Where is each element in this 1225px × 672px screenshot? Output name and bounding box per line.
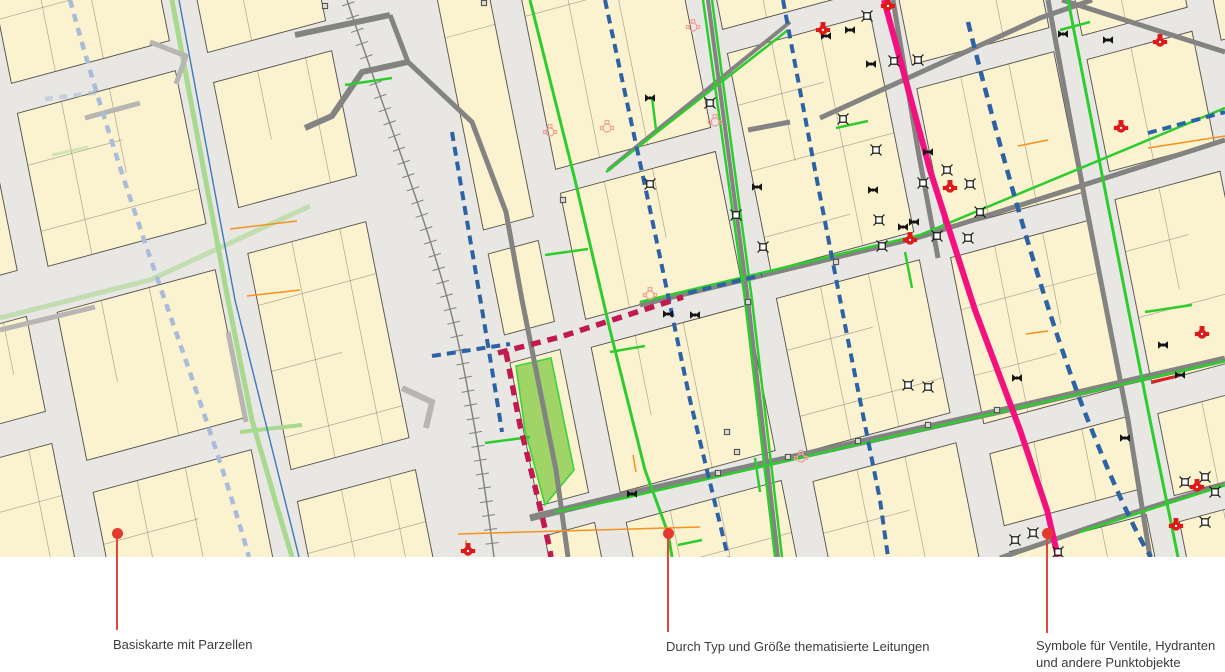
callout-label-line1: Basiskarte mit Parzellen	[113, 636, 252, 653]
callout-dot-icon	[1042, 528, 1053, 539]
pipe-node-icon	[322, 3, 327, 8]
callout-dot-icon	[663, 528, 674, 539]
pipe-node-icon	[833, 259, 838, 264]
callout-line	[116, 533, 118, 630]
pipe-node-icon	[785, 454, 790, 459]
callout-label: Durch Typ und Größe thematisierte Leitun…	[666, 638, 930, 655]
pipe-node-icon	[994, 407, 999, 412]
pipe-node-icon	[745, 299, 750, 304]
map-canvas	[0, 0, 1225, 557]
pipe-node-icon	[925, 422, 930, 427]
callout-dot-icon	[112, 528, 123, 539]
callout-label: Basiskarte mit Parzellen	[113, 636, 252, 653]
pipe-node-icon	[481, 0, 486, 5]
callout-label-line1: Symbole für Ventile, Hydranten	[1036, 637, 1215, 654]
pipe-node-icon	[724, 429, 729, 434]
callout-label: Symbole für Ventile, Hydranten und ander…	[1036, 637, 1215, 671]
callout-line	[667, 533, 669, 632]
pipe-node-icon	[734, 449, 739, 454]
pipe-node-icon	[715, 470, 720, 475]
callout-label-line1: Durch Typ und Größe thematisierte Leitun…	[666, 638, 930, 655]
pipe-node-icon	[560, 197, 565, 202]
callout-label-line2: und andere Punktobjekte	[1036, 654, 1215, 671]
callout-line	[1046, 533, 1048, 633]
pipe-node-icon	[855, 438, 860, 443]
figure-utility-network-map: Basiskarte mit Parzellen Durch Typ und G…	[0, 0, 1225, 672]
